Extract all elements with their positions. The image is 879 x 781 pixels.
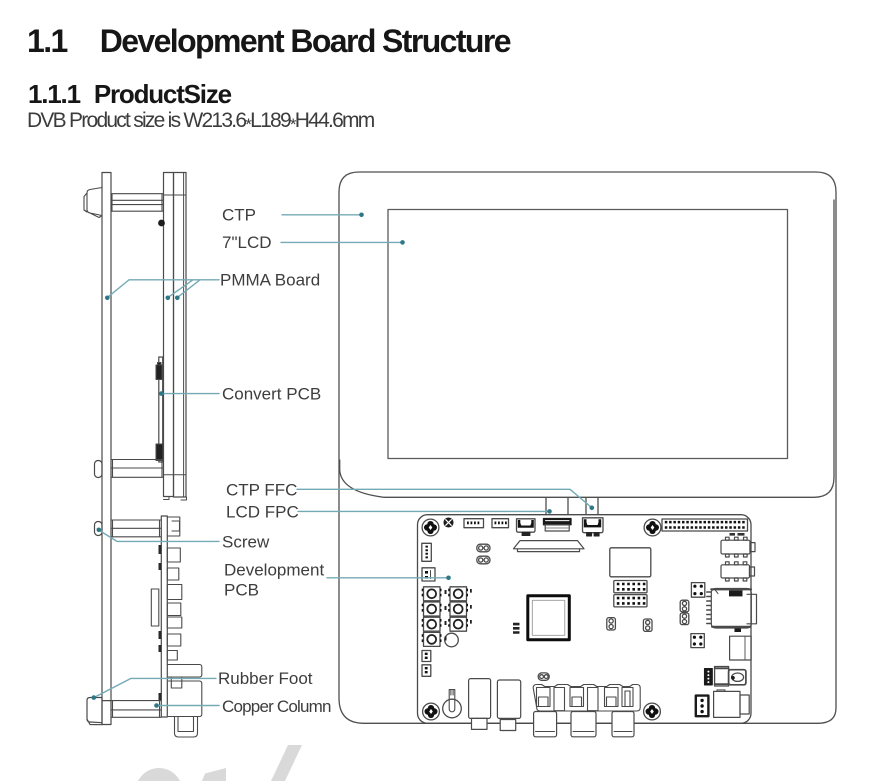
svg-text:CTP: CTP bbox=[222, 206, 256, 225]
svg-text:7"LCD: 7"LCD bbox=[222, 233, 272, 252]
svg-text:Convert PCB: Convert PCB bbox=[222, 385, 321, 404]
svg-text:LCD FPC: LCD FPC bbox=[226, 503, 299, 522]
svg-text:Development: Development bbox=[224, 561, 324, 580]
svg-text:PCB: PCB bbox=[224, 581, 259, 600]
svg-text:CTP FFC: CTP FFC bbox=[226, 481, 297, 500]
svg-text:Rubber Foot: Rubber Foot bbox=[218, 669, 313, 688]
svg-text:Copper Column: Copper Column bbox=[222, 697, 331, 716]
svg-text:PMMA Board: PMMA Board bbox=[220, 271, 320, 290]
svg-text:Screw: Screw bbox=[222, 533, 270, 552]
